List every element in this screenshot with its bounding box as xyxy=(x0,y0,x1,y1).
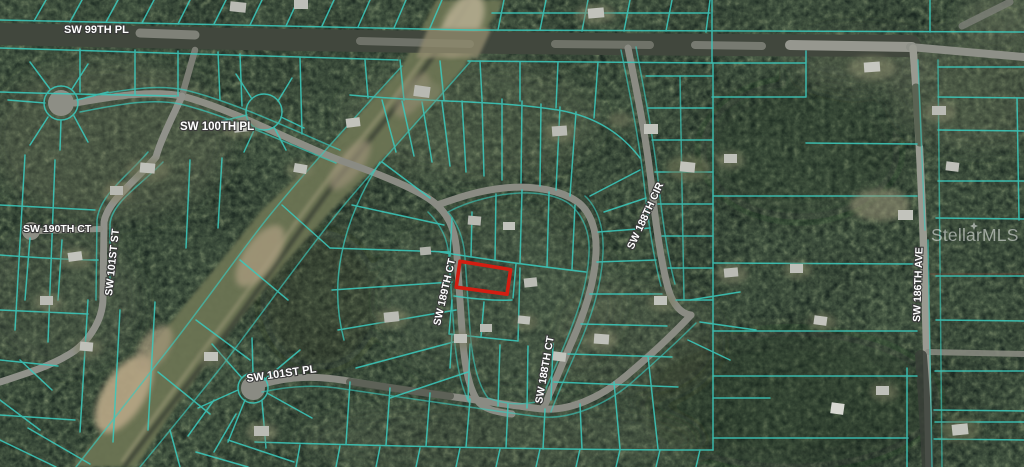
svg-text:SW 100TH PL: SW 100TH PL xyxy=(180,121,254,133)
svg-text:SW 99TH PL: SW 99TH PL xyxy=(64,24,129,36)
svg-text:SW 190TH CT: SW 190TH CT xyxy=(23,223,92,235)
